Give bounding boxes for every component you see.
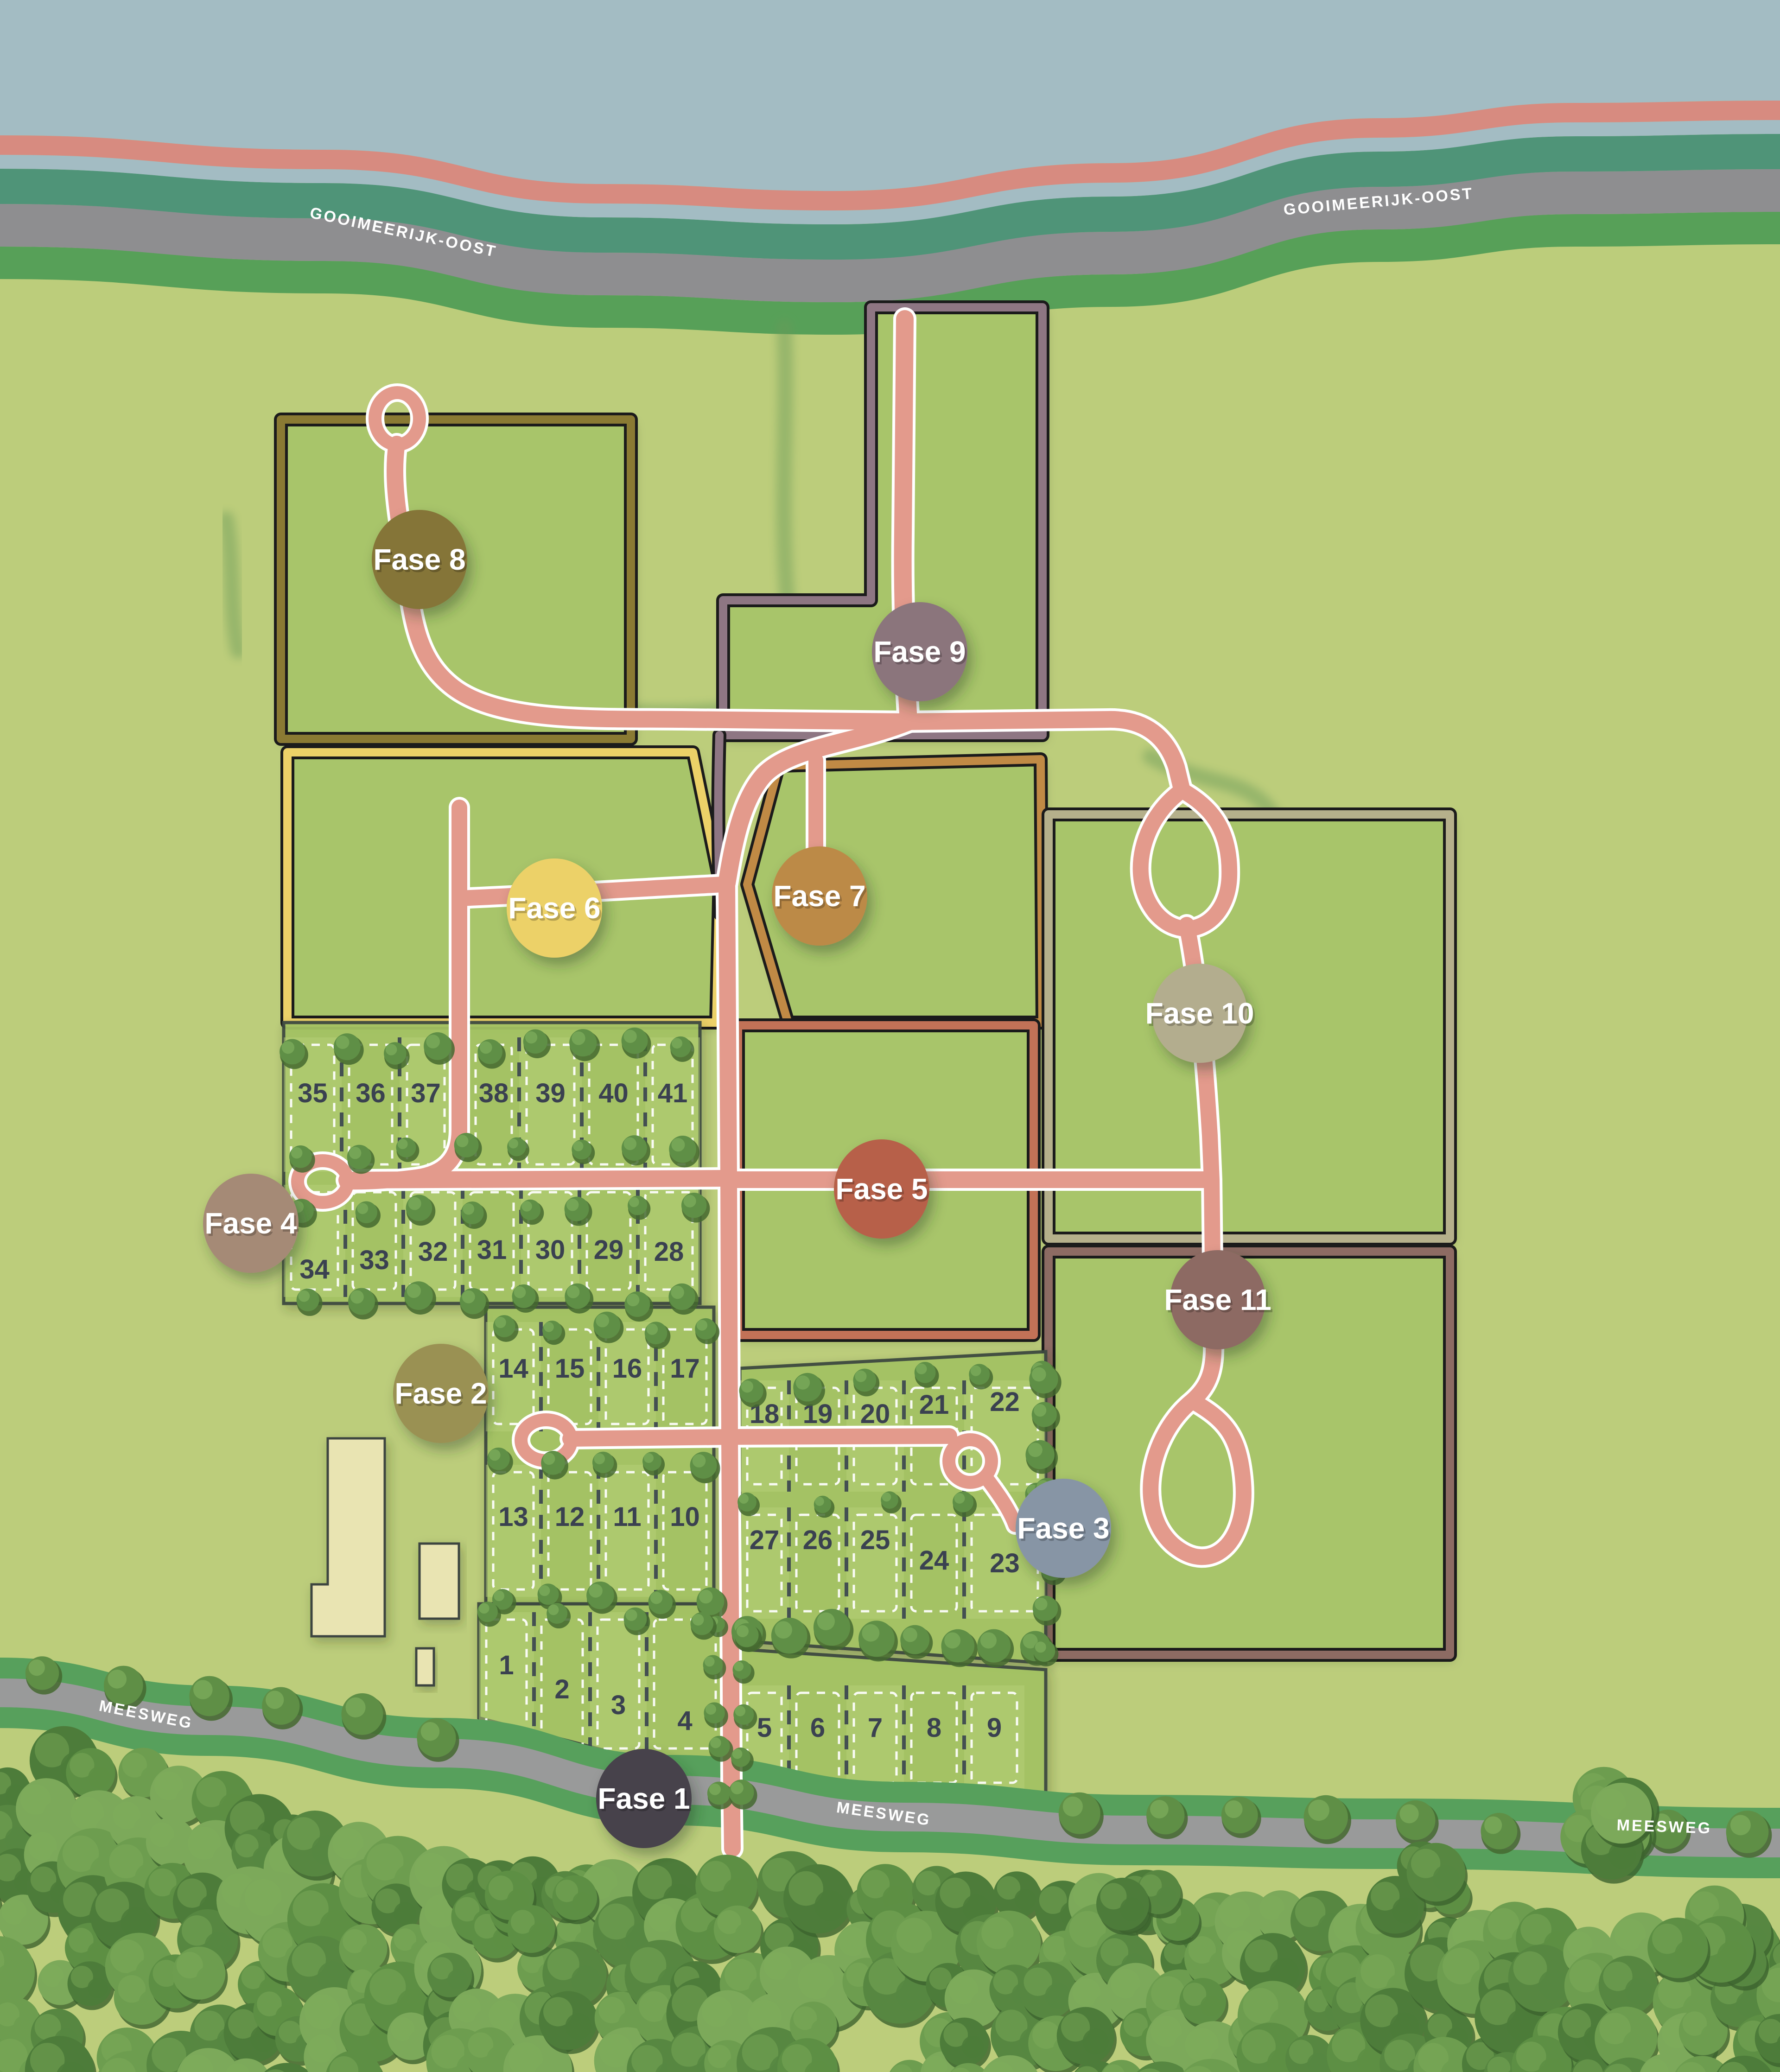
tree-highlight bbox=[1035, 1641, 1046, 1653]
forest-tree-lobe bbox=[1083, 2028, 1109, 2054]
plot-number: 4 bbox=[677, 1706, 692, 1736]
phase-badge-label: Fase 2 bbox=[394, 1377, 487, 1410]
plot-number: 34 bbox=[299, 1254, 330, 1284]
tree-highlight bbox=[693, 1454, 706, 1468]
forest-tree-lobe bbox=[735, 1923, 756, 1945]
tree-highlight bbox=[426, 1035, 440, 1049]
phase-badge-label: Fase 7 bbox=[773, 879, 865, 913]
tree-highlight bbox=[421, 1722, 440, 1741]
plot-13[interactable]: 13 bbox=[486, 1465, 541, 1597]
forest-tree-lobe bbox=[1717, 1941, 1747, 1971]
tree-highlight bbox=[357, 1203, 368, 1214]
plot-number: 30 bbox=[535, 1235, 566, 1265]
tree-highlight bbox=[650, 1592, 662, 1604]
tree-highlight bbox=[345, 1697, 365, 1717]
phase-badge-fase-9[interactable]: Fase 9Fase 9 bbox=[872, 602, 968, 701]
tree-highlight bbox=[407, 1284, 421, 1298]
plot-number: 21 bbox=[919, 1390, 949, 1420]
tree-highlight bbox=[266, 1691, 284, 1709]
tree-highlight bbox=[1028, 1443, 1043, 1457]
plot-number: 13 bbox=[498, 1502, 528, 1532]
tree-highlight bbox=[480, 1041, 492, 1054]
tree-highlight bbox=[462, 1290, 475, 1303]
tree-highlight bbox=[709, 1784, 721, 1795]
phase-badge-fase-5[interactable]: Fase 5Fase 5 bbox=[834, 1139, 930, 1239]
plot-number: 9 bbox=[987, 1713, 1002, 1743]
phase-badge-label: Fase 9 bbox=[873, 635, 966, 668]
plot-number: 8 bbox=[927, 1713, 941, 1743]
tree-highlight bbox=[739, 1494, 749, 1504]
site-plan-map: 3536373839404134333231302928141516171312… bbox=[0, 0, 1780, 2072]
plot-number: 37 bbox=[411, 1078, 441, 1108]
plot-number: 28 bbox=[654, 1237, 684, 1267]
plot-number: 3 bbox=[611, 1690, 626, 1720]
tree-highlight bbox=[734, 1662, 744, 1672]
forest-tree-lobe bbox=[361, 1942, 382, 1964]
tree-highlight bbox=[706, 1704, 716, 1715]
tree-highlight bbox=[1484, 1816, 1502, 1834]
plot-number: 20 bbox=[860, 1399, 890, 1429]
phase-badge-label: Fase 11 bbox=[1164, 1283, 1271, 1316]
tree-highlight bbox=[1730, 1815, 1751, 1835]
tree-highlight bbox=[815, 1497, 824, 1506]
tree-highlight bbox=[624, 1138, 636, 1150]
phase-badge-fase-4[interactable]: Fase 4Fase 4 bbox=[203, 1174, 299, 1273]
tree-highlight bbox=[683, 1195, 696, 1208]
tree-highlight bbox=[623, 1030, 636, 1043]
tree-highlight bbox=[525, 1031, 537, 1043]
tree-highlight bbox=[671, 1138, 685, 1151]
plot-cell-shade bbox=[846, 1507, 904, 1619]
forest-tree-lobe bbox=[566, 2013, 592, 2040]
tree-highlight bbox=[775, 1621, 792, 1639]
tree-highlight bbox=[732, 1749, 743, 1759]
tree-highlight bbox=[349, 1147, 361, 1159]
tree-highlight bbox=[509, 1139, 518, 1149]
forest-tree-lobe bbox=[447, 1970, 467, 1989]
forest-tree-lobe bbox=[196, 1966, 220, 1990]
forest-tree-lobe bbox=[571, 1966, 600, 1995]
plot-number: 14 bbox=[498, 1354, 528, 1384]
tree-highlight bbox=[336, 1036, 350, 1049]
tree-highlight bbox=[817, 1612, 835, 1630]
tree-highlight bbox=[672, 1038, 682, 1049]
tree-highlight bbox=[954, 1493, 965, 1504]
forest-tree-lobe bbox=[1623, 2030, 1651, 2059]
tree-highlight bbox=[735, 1706, 745, 1716]
phase-badge-label: Fase 5 bbox=[835, 1172, 928, 1206]
tree-highlight bbox=[1034, 1404, 1046, 1417]
plot-number: 1 bbox=[499, 1650, 514, 1680]
tree-highlight bbox=[971, 1366, 981, 1376]
building bbox=[420, 1544, 459, 1619]
tree-highlight bbox=[298, 1290, 310, 1302]
tree-highlight bbox=[944, 1632, 960, 1648]
tree-highlight bbox=[882, 1493, 891, 1502]
forest-tree-lobe bbox=[814, 1890, 845, 1921]
forest-tree-lobe bbox=[88, 1978, 108, 1998]
tree-highlight bbox=[596, 1314, 609, 1328]
tree-highlight bbox=[567, 1285, 579, 1298]
plot-number: 5 bbox=[757, 1713, 772, 1743]
tree-highlight bbox=[108, 1670, 127, 1689]
road-label-meesweg: MEESWEG bbox=[1616, 1816, 1712, 1837]
forest-tree-lobe bbox=[20, 1913, 43, 1936]
phase-badge-fase-3[interactable]: Fase 3Fase 3 bbox=[1016, 1479, 1112, 1578]
plot-number: 17 bbox=[670, 1354, 700, 1384]
tree-highlight bbox=[514, 1286, 526, 1298]
forest-tree-lobe bbox=[1433, 1865, 1459, 1891]
tree-highlight bbox=[566, 1199, 579, 1211]
tree-highlight bbox=[647, 1323, 658, 1335]
tree-highlight bbox=[350, 1290, 364, 1304]
phase-badge-label: Fase 1 bbox=[598, 1782, 690, 1815]
forest-tree-lobe bbox=[1675, 1940, 1702, 1968]
plot-11[interactable]: 11 bbox=[598, 1465, 656, 1597]
plot-number: 33 bbox=[359, 1245, 389, 1275]
tree-highlight bbox=[543, 1453, 555, 1465]
forest-tree-lobe bbox=[811, 2019, 833, 2040]
forest-tree-lobe bbox=[1045, 1983, 1070, 2008]
phase-badge-label: Fase 8 bbox=[373, 543, 465, 576]
tree-highlight bbox=[903, 1627, 917, 1642]
tree-highlight bbox=[282, 1041, 294, 1054]
forest-tree-lobe bbox=[1701, 2025, 1723, 2047]
tree-highlight bbox=[737, 1625, 749, 1637]
tree-highlight bbox=[495, 1317, 506, 1328]
tree-highlight bbox=[1032, 1367, 1046, 1382]
forest-tree-lobe bbox=[394, 1902, 416, 1925]
plot-number: 39 bbox=[535, 1078, 566, 1108]
tree-highlight bbox=[626, 1609, 637, 1621]
plot-number: 15 bbox=[555, 1354, 585, 1384]
forest-tree-lobe bbox=[962, 2036, 984, 2058]
tree-highlight bbox=[572, 1031, 585, 1045]
forest-tree-lobe bbox=[1201, 1996, 1221, 2016]
road-pink bbox=[727, 883, 732, 1849]
phase-badge-fase-1[interactable]: Fase 1Fase 1 bbox=[596, 1749, 692, 1848]
plot-number: 29 bbox=[594, 1235, 624, 1265]
plot-number: 11 bbox=[613, 1502, 641, 1532]
plot-number: 2 bbox=[554, 1674, 569, 1704]
tree-highlight bbox=[644, 1453, 654, 1463]
phase-badge-fase-6[interactable]: Fase 6Fase 6 bbox=[507, 858, 603, 958]
tree-highlight bbox=[29, 1659, 45, 1676]
phase-badge-label: Fase 4 bbox=[204, 1207, 297, 1240]
plot-number: 24 bbox=[919, 1545, 949, 1576]
plot-number: 6 bbox=[810, 1713, 825, 1743]
plot-number: 40 bbox=[598, 1078, 629, 1108]
forest-tree-lobe bbox=[1005, 1935, 1034, 1964]
road-pink bbox=[347, 1178, 726, 1180]
plot-number: 27 bbox=[750, 1525, 780, 1555]
plot-number: 36 bbox=[356, 1078, 386, 1108]
forest-tree-lobe bbox=[1156, 1887, 1176, 1907]
forest-tree-lobe bbox=[529, 1923, 550, 1945]
tree-highlight bbox=[408, 1197, 421, 1210]
tree-highlight bbox=[627, 1294, 639, 1306]
plot-number: 32 bbox=[418, 1237, 448, 1267]
tree-highlight bbox=[1035, 1598, 1047, 1610]
tree-highlight bbox=[193, 1680, 213, 1699]
phase-badge-fase-8[interactable]: Fase 8Fase 8 bbox=[372, 510, 468, 609]
tree-highlight bbox=[1150, 1800, 1169, 1818]
plot-number: 10 bbox=[670, 1502, 700, 1532]
tree-highlight bbox=[539, 1585, 550, 1596]
tree-highlight bbox=[629, 1197, 639, 1207]
tree-highlight bbox=[489, 1449, 501, 1461]
plot-number: 35 bbox=[298, 1078, 328, 1108]
tree-highlight bbox=[544, 1322, 554, 1332]
tree-highlight bbox=[1399, 1804, 1418, 1823]
plot-9[interactable]: 9 bbox=[964, 1685, 1024, 1790]
plot-number: 41 bbox=[658, 1078, 688, 1108]
site-plan-svg: 3536373839404134333231302928141516171312… bbox=[0, 0, 1780, 2072]
tree-highlight bbox=[1308, 1799, 1329, 1821]
tree-highlight bbox=[699, 1590, 713, 1604]
plot-7[interactable]: 7 bbox=[846, 1685, 904, 1790]
forest-tree-lobe bbox=[1538, 1970, 1569, 2000]
tree-highlight bbox=[916, 1363, 927, 1374]
plot-number: 22 bbox=[990, 1387, 1020, 1417]
tree-highlight bbox=[494, 1590, 504, 1601]
plot-number: 31 bbox=[477, 1235, 507, 1265]
plot-25[interactable]: 25 bbox=[846, 1507, 904, 1619]
forest-tree-lobe bbox=[1625, 1978, 1652, 2004]
tree-highlight bbox=[855, 1371, 866, 1382]
tree-highlight bbox=[291, 1147, 303, 1159]
plot-number: 16 bbox=[612, 1354, 642, 1384]
tree-highlight bbox=[710, 1737, 721, 1748]
phase-badge-label: Fase 10 bbox=[1145, 997, 1254, 1030]
tree-highlight bbox=[1063, 1797, 1083, 1817]
building bbox=[416, 1648, 434, 1685]
plot-number: 25 bbox=[860, 1525, 890, 1555]
tree-highlight bbox=[741, 1380, 753, 1392]
tree-highlight bbox=[456, 1135, 468, 1147]
plot-number: 23 bbox=[990, 1548, 1020, 1578]
tree-highlight bbox=[1225, 1800, 1242, 1818]
phase-badge-fase-7[interactable]: Fase 7Fase 7 bbox=[772, 846, 868, 946]
forest-tree-lobe bbox=[88, 1767, 110, 1789]
plot-27[interactable]: 27 bbox=[740, 1507, 789, 1619]
phase-badge-label: Fase 3 bbox=[1017, 1512, 1109, 1545]
forest-tree-lobe bbox=[1015, 1889, 1036, 1910]
tree-highlight bbox=[671, 1286, 684, 1299]
tree-highlight bbox=[573, 1141, 583, 1151]
tree-highlight bbox=[980, 1632, 997, 1648]
plot-number: 12 bbox=[555, 1502, 585, 1532]
tree-highlight bbox=[594, 1453, 605, 1464]
tree-highlight bbox=[548, 1604, 559, 1615]
tree-highlight bbox=[386, 1044, 397, 1055]
forest-tree-lobe bbox=[1176, 1914, 1195, 1933]
tree-highlight bbox=[697, 1320, 707, 1330]
tree-highlight bbox=[589, 1584, 603, 1598]
tree-highlight bbox=[521, 1201, 532, 1212]
tree-highlight bbox=[479, 1603, 489, 1614]
plot-number: 7 bbox=[868, 1713, 883, 1743]
tree-highlight bbox=[463, 1203, 474, 1215]
forest-tree-lobe bbox=[723, 1878, 751, 1906]
forest-tree-lobe bbox=[572, 1892, 592, 1912]
phase-badge-label: Fase 6 bbox=[508, 891, 600, 925]
plot-number: 26 bbox=[803, 1525, 833, 1555]
phase-badge-fase-2[interactable]: Fase 2Fase 2 bbox=[393, 1344, 489, 1443]
road-pink bbox=[570, 1436, 949, 1439]
forest-tree-lobe bbox=[1392, 1898, 1418, 1924]
tree-highlight bbox=[796, 1375, 810, 1389]
stream-meander bbox=[226, 519, 238, 651]
tree-highlight bbox=[693, 1614, 704, 1626]
tree-highlight bbox=[731, 1782, 744, 1794]
tree-highlight bbox=[705, 1656, 715, 1666]
forest-tree-lobe bbox=[1120, 1898, 1144, 1921]
tree-highlight bbox=[398, 1139, 408, 1149]
plot-number: 38 bbox=[479, 1078, 509, 1108]
tree-highlight bbox=[862, 1624, 879, 1642]
